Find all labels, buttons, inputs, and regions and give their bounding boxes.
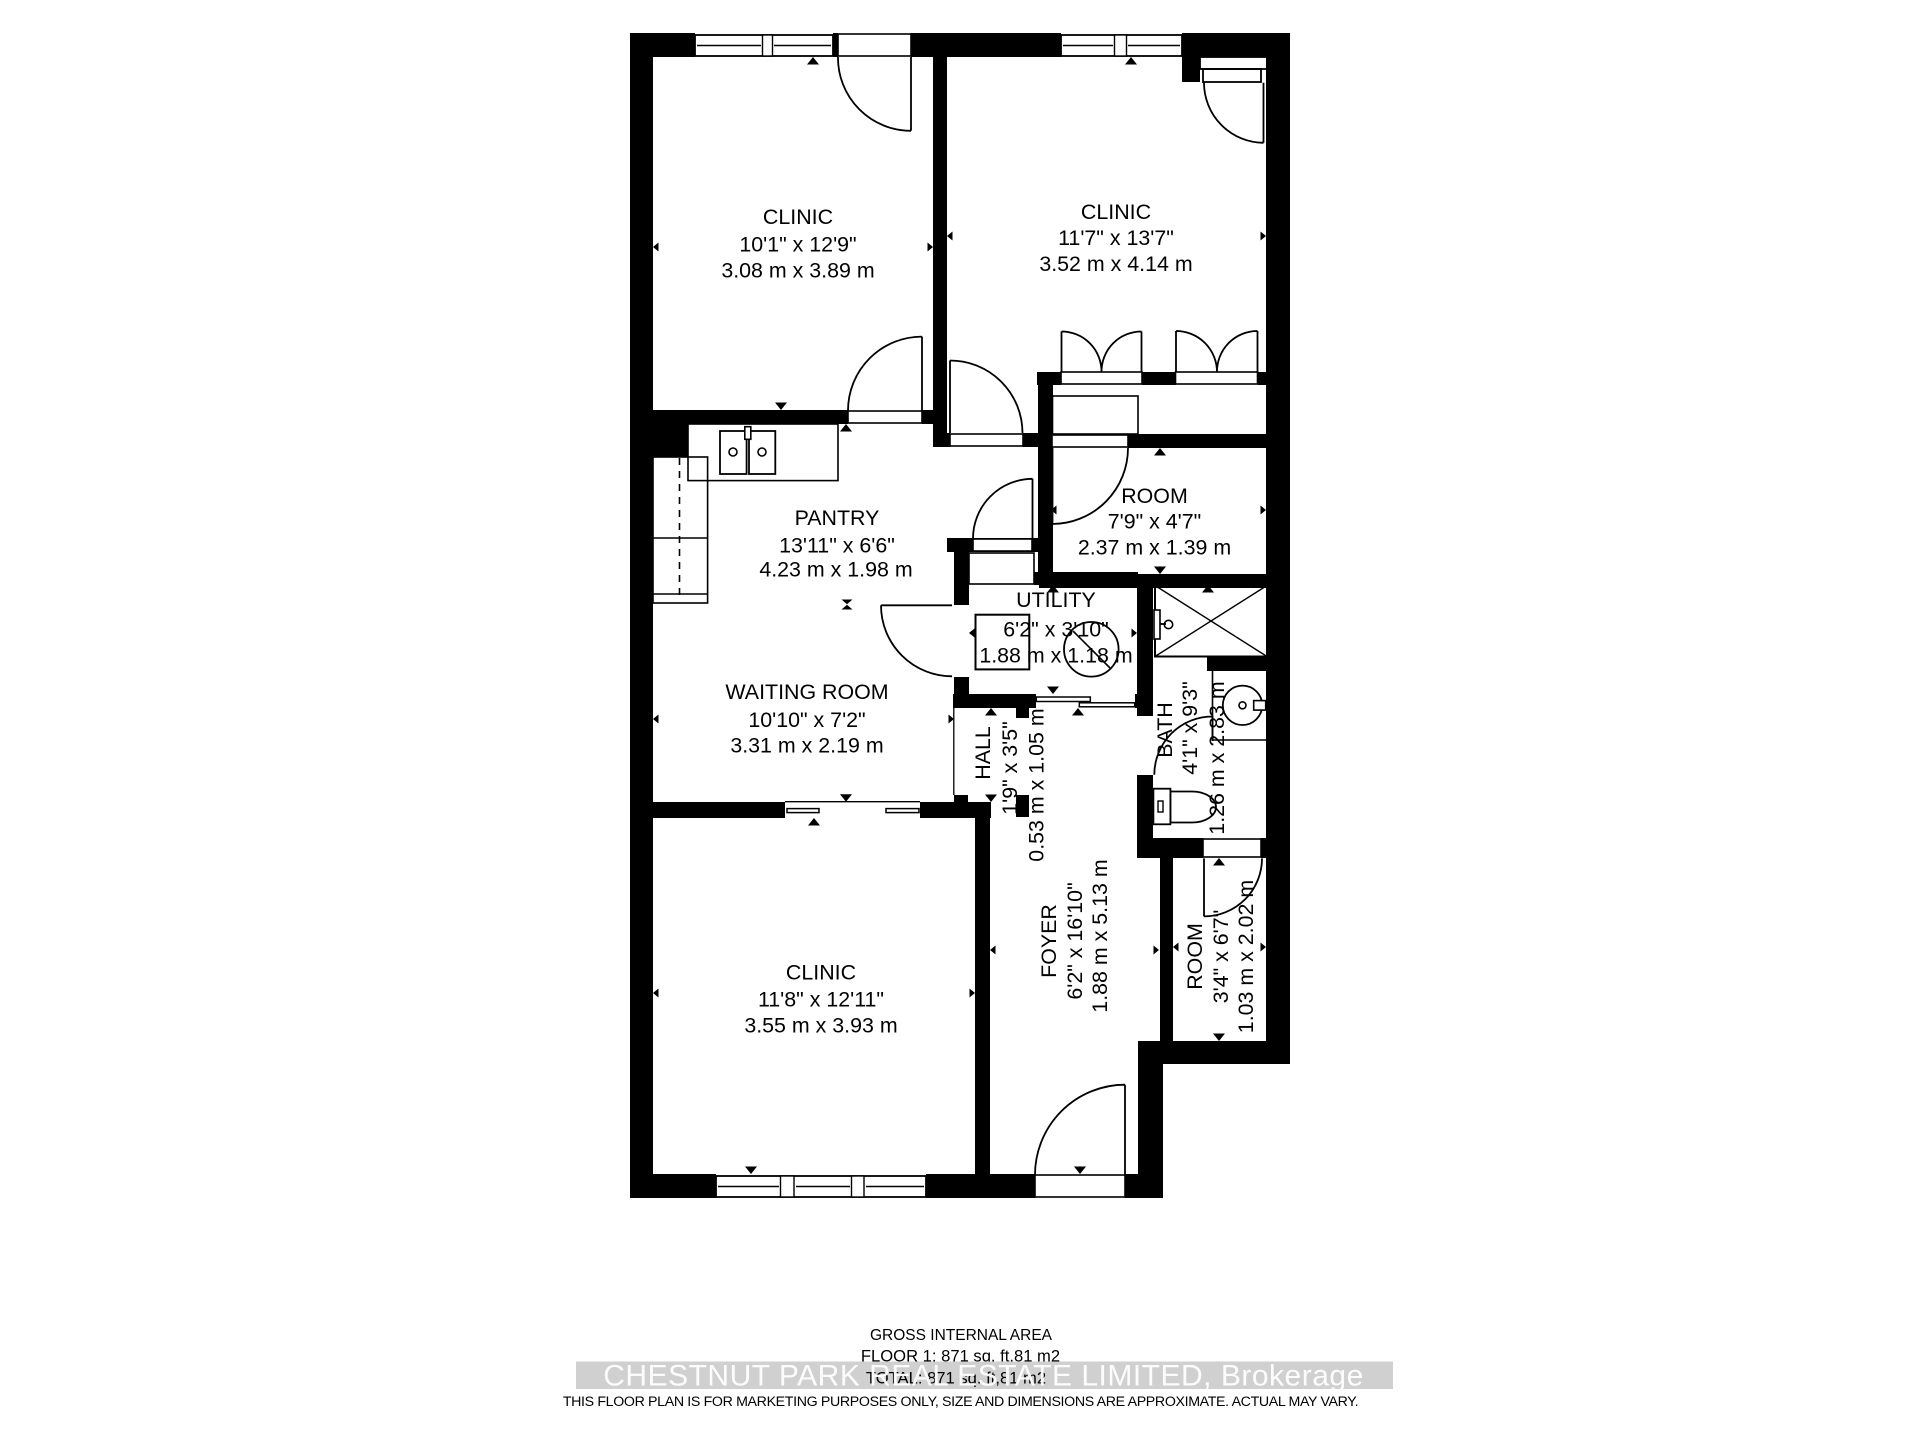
svg-text:THIS FLOOR PLAN IS FOR MARKETI: THIS FLOOR PLAN IS FOR MARKETING PURPOSE… bbox=[563, 1394, 1358, 1410]
svg-text:3.55 m x 3.93 m: 3.55 m x 3.93 m bbox=[744, 1014, 897, 1038]
svg-text:4.23 m x 1.98 m: 4.23 m x 1.98 m bbox=[759, 557, 912, 581]
svg-text:1.88 m x 1.18 m: 1.88 m x 1.18 m bbox=[979, 643, 1132, 667]
svg-text:HALL: HALL bbox=[971, 726, 995, 780]
svg-text:1.26 m x 2.83 m: 1.26 m x 2.83 m bbox=[1205, 681, 1229, 834]
svg-text:CLINIC: CLINIC bbox=[1081, 200, 1151, 224]
svg-text:7'9" x 4'7": 7'9" x 4'7" bbox=[1108, 510, 1202, 534]
svg-text:2.37 m x 1.39 m: 2.37 m x 1.39 m bbox=[1078, 535, 1231, 559]
svg-text:3.52 m x 4.14 m: 3.52 m x 4.14 m bbox=[1039, 252, 1192, 276]
svg-text:6'2" x 16'10": 6'2" x 16'10" bbox=[1063, 882, 1087, 999]
svg-text:ROOM: ROOM bbox=[1121, 484, 1188, 508]
svg-text:4'1" x 9'3": 4'1" x 9'3" bbox=[1178, 681, 1202, 775]
svg-text:WAITING ROOM: WAITING ROOM bbox=[725, 680, 888, 704]
svg-text:11'7" x 13'7": 11'7" x 13'7" bbox=[1058, 226, 1174, 250]
svg-text:6'2" x 3'10": 6'2" x 3'10" bbox=[1003, 618, 1108, 642]
svg-text:1.88 m x 5.13 m: 1.88 m x 5.13 m bbox=[1088, 859, 1112, 1012]
svg-text:0.53 m x 1.05 m: 0.53 m x 1.05 m bbox=[1025, 708, 1049, 861]
svg-text:3.08 m x 3.89 m: 3.08 m x 3.89 m bbox=[721, 259, 874, 283]
svg-text:UTILITY: UTILITY bbox=[1016, 588, 1096, 612]
svg-text:10'1" x 12'9": 10'1" x 12'9" bbox=[739, 232, 856, 256]
svg-text:PANTRY: PANTRY bbox=[795, 506, 880, 530]
svg-text:3'4" x 6'7": 3'4" x 6'7" bbox=[1209, 910, 1233, 1004]
svg-text:ROOM: ROOM bbox=[1183, 923, 1207, 990]
svg-text:1'9" x 3'5": 1'9" x 3'5" bbox=[998, 721, 1022, 815]
svg-text:CLINIC: CLINIC bbox=[786, 961, 856, 985]
svg-text:10'10" x 7'2": 10'10" x 7'2" bbox=[748, 708, 865, 732]
svg-text:CLINIC: CLINIC bbox=[763, 205, 833, 229]
svg-text:GROSS INTERNAL AREA: GROSS INTERNAL AREA bbox=[870, 1327, 1053, 1344]
svg-text:13'11" x 6'6": 13'11" x 6'6" bbox=[779, 534, 895, 558]
svg-text:FOYER: FOYER bbox=[1037, 904, 1061, 978]
svg-text:3.31 m x 2.19 m: 3.31 m x 2.19 m bbox=[730, 734, 883, 758]
svg-text:BATH: BATH bbox=[1153, 702, 1177, 757]
svg-text:1.03 m x 2.02 m: 1.03 m x 2.02 m bbox=[1234, 880, 1258, 1033]
svg-text:CHESTNUT PARK REAL ESTATE LIMI: CHESTNUT PARK REAL ESTATE LIMITED, Broke… bbox=[603, 1360, 1364, 1393]
svg-text:11'8" x 12'11": 11'8" x 12'11" bbox=[758, 988, 884, 1012]
